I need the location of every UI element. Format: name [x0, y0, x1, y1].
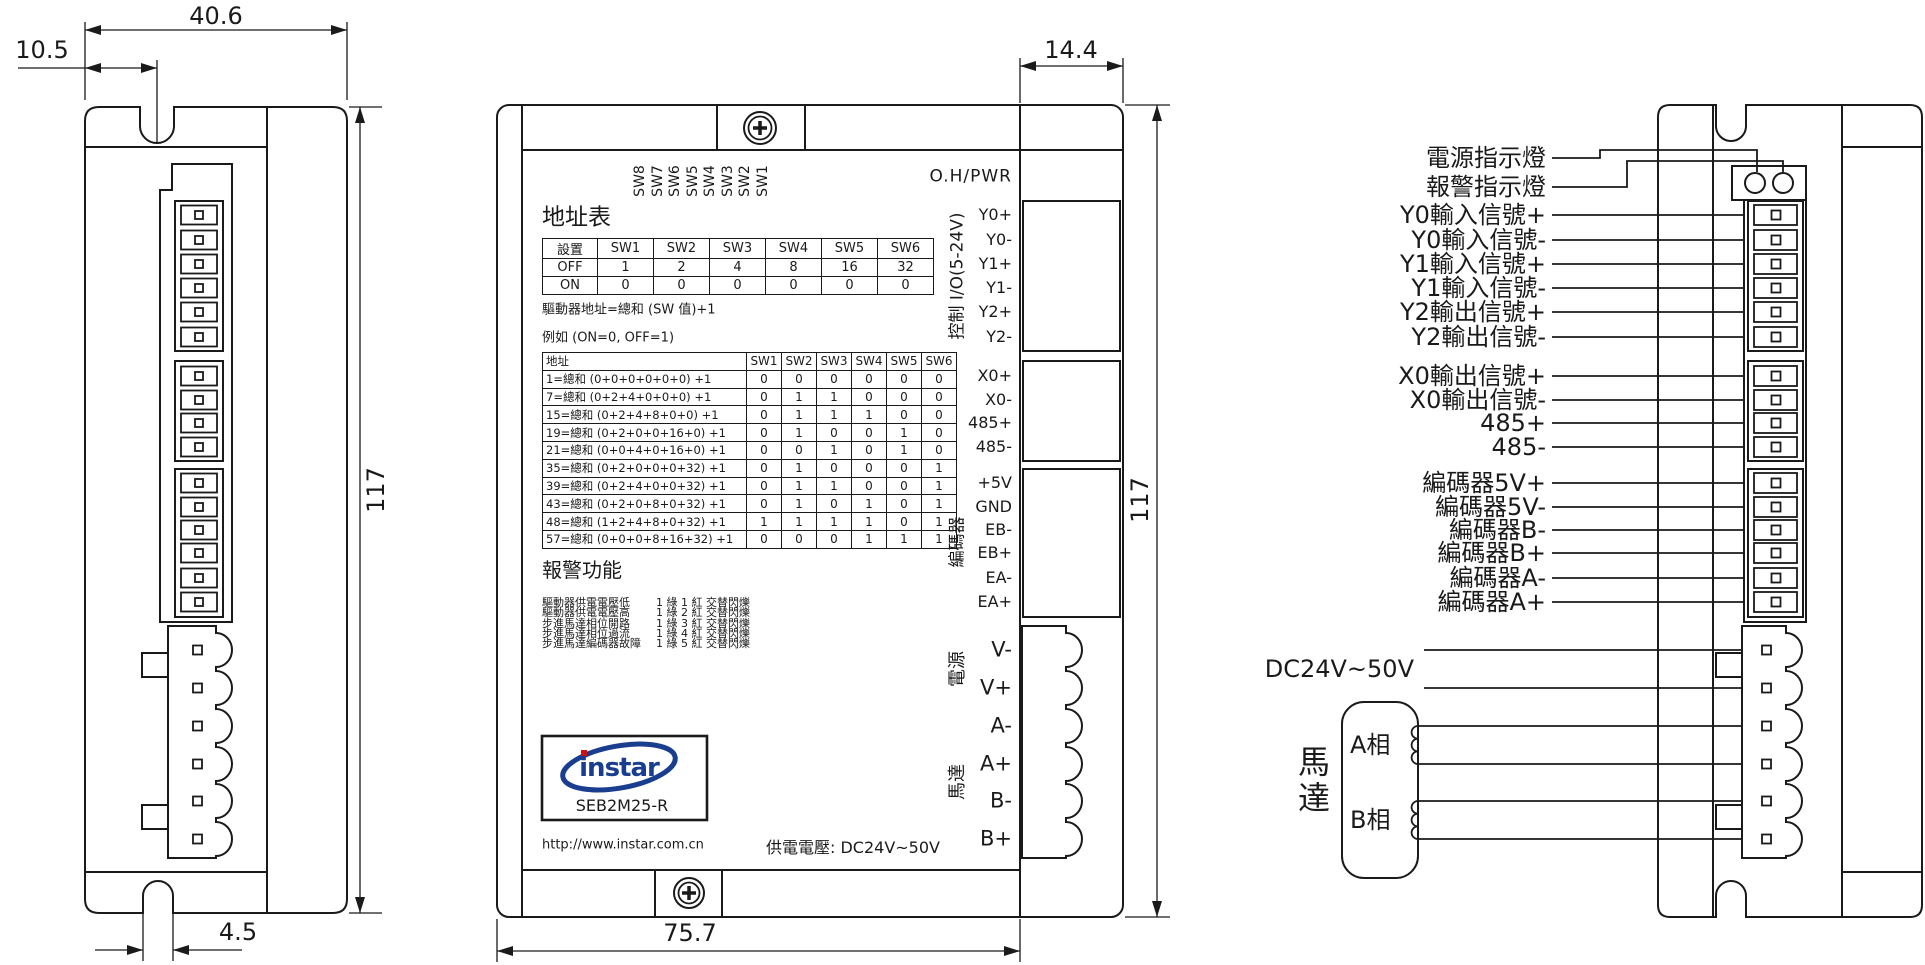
right-view-outline [1658, 105, 1922, 917]
pin-label-+5V: +5V [977, 475, 1012, 491]
front-power-plug [1022, 626, 1082, 858]
alarm-signal: 1 綠 5 紅 交替閃爍 [656, 639, 750, 649]
front-block-io [1023, 201, 1120, 351]
dip-switch-label-sw3: SW3 [721, 165, 735, 197]
pin-label-V+: V+ [980, 678, 1012, 699]
front-block-encoder [1023, 469, 1120, 617]
plug-tab [1716, 653, 1742, 677]
front-block-comm [1023, 361, 1120, 461]
alarm-item: 步進馬達編碼器故障1 綠 5 紅 交替閃爍 [542, 639, 750, 649]
led-panel [1732, 166, 1806, 200]
table-row: ON000000 [543, 276, 934, 294]
pin-label-B-: B- [990, 791, 1012, 812]
dim-arrow [355, 897, 365, 913]
dim-arrow [331, 25, 347, 35]
alarm-title: 報警功能 [542, 560, 622, 580]
left-view-outline [85, 107, 347, 913]
phase-b-label: B相 [1350, 808, 1390, 832]
pin-label-A+: A+ [980, 754, 1012, 775]
table-row: 1=總和 (0+0+0+0+0+0) +1000000 [543, 370, 957, 388]
table-row: 48=總和 (1+2+4+8+0+32) +1111101 [543, 513, 957, 531]
plug-tab [1716, 805, 1742, 829]
address-formula: 驅動器地址=總和 (SW 值)+1 [542, 304, 716, 317]
dim-arrow [1152, 901, 1162, 917]
pin-label-V-: V- [991, 640, 1012, 661]
screw-bottom-icon [674, 878, 704, 908]
right-terminal-block-io [1748, 201, 1803, 351]
dip-switch-label-sw5: SW5 [686, 165, 700, 197]
wire-label-15: 編碼器B+ [1437, 541, 1546, 565]
dim-arrow [1107, 61, 1123, 71]
wire-label-16: 編碼器A- [1449, 566, 1546, 590]
dip-switch-label-sw6: SW6 [668, 165, 682, 197]
table-row: 21=總和 (0+0+4+0+16+0) +1001010 [543, 441, 957, 459]
wire-label-5: Y1輸入信號- [1411, 276, 1546, 300]
phase-a-label: A相 [1350, 733, 1390, 757]
pin-label-GND: GND [975, 499, 1012, 515]
dip-switch-label-sw8: SW8 [633, 165, 647, 197]
table-row: 39=總和 (0+2+4+0+0+32) +1011001 [543, 477, 957, 495]
dim-arrow [127, 945, 143, 955]
dim-arrow [85, 63, 101, 73]
screw-top-icon [744, 112, 776, 144]
pin-label-Y0-: Y0- [986, 232, 1012, 248]
address-table-title: 地址表 [542, 207, 611, 230]
wire-label-11: 485- [1492, 435, 1546, 459]
dim-left-slot: 4.5 [219, 920, 257, 944]
pin-label-Y2+: Y2+ [979, 304, 1012, 320]
wire-label-7: Y2輸出信號- [1411, 325, 1546, 349]
dim-arrow [173, 945, 189, 955]
dim-arrow [355, 107, 365, 123]
table-row: 地址SW1SW2SW3SW4SW5SW6 [543, 353, 957, 371]
pin-label-EA+: EA+ [978, 594, 1012, 610]
motor-label-vertical: 馬達 [1296, 745, 1328, 817]
group-label-control-io: 控制 I/O(5-24V) [950, 212, 967, 339]
dim-arrow [1020, 61, 1036, 71]
logo-dot [581, 750, 587, 756]
pin-label-EB+: EB+ [978, 545, 1013, 561]
dim-arrow [1152, 105, 1162, 121]
stepper-driver-technical-drawing: 40.6 10.5 117 4.5 14.4 117 75.7 O.H/PWR … [0, 0, 1925, 965]
pin-label-485+: 485+ [968, 415, 1012, 431]
dim-arrow [1004, 946, 1020, 956]
pin-label-X0+: X0+ [977, 368, 1012, 384]
wire-label-6: Y2輸出信號+ [1400, 300, 1546, 324]
table-row: 57=總和 (0+0+0+8+16+32) +1000111 [543, 530, 957, 548]
motor-symbol-box [1342, 702, 1418, 878]
dim-front-depth: 14.4 [1044, 38, 1097, 62]
generated-line-art [142, 150, 1803, 858]
pin-label-B+: B+ [980, 829, 1012, 850]
dim-left-height: 117 [364, 467, 388, 513]
table-row: 43=總和 (0+2+0+8+0+32) +1010101 [543, 495, 957, 513]
group-label-motor: 馬達 [949, 764, 967, 800]
pin-label-EB-: EB- [985, 522, 1012, 538]
pin-label-Y1+: Y1+ [979, 256, 1012, 272]
dip-switch-label-sw7: SW7 [651, 165, 665, 197]
pin-label-485-: 485- [976, 439, 1012, 455]
table-row: OFF12481632 [543, 259, 934, 277]
dip-switch-label-sw1: SW1 [756, 165, 770, 197]
right-terminal-block-comm [1748, 361, 1803, 461]
group-label-power: 電源 [949, 651, 967, 687]
dim-arrow [497, 946, 513, 956]
pin-label-A-: A- [991, 716, 1012, 737]
wire-label-8: X0輸出信號+ [1398, 364, 1546, 388]
alarm-led-icon [1773, 173, 1793, 193]
power-led-icon [1745, 173, 1765, 193]
oh-pwr-label: O.H/PWR [930, 169, 1012, 186]
dim-left-width: 40.6 [189, 4, 242, 28]
wire-label-0: 電源指示燈 [1426, 146, 1546, 170]
pin-label-Y1-: Y1- [986, 280, 1012, 296]
table-row: 35=總和 (0+2+0+0+0+32) +1010001 [543, 459, 957, 477]
wire-label-17: 編碼器A+ [1437, 590, 1546, 614]
left-connector-housing [160, 164, 232, 622]
wire-label-10: 485+ [1480, 411, 1546, 435]
table-row: 設置SW1SW2SW3SW4SW5SW6 [543, 239, 934, 259]
left-power-plug [168, 626, 232, 858]
table-row: 19=總和 (0+2+0+0+16+0) +1010010 [543, 424, 957, 442]
dim-arrow [85, 25, 101, 35]
wire-label-2: Y0輸入信號+ [1400, 203, 1546, 227]
address-example: 例如 (ON=0, OFF=1) [542, 332, 674, 345]
pin-label-Y2-: Y2- [986, 329, 1012, 345]
pin-label-X0-: X0- [985, 392, 1012, 408]
left-terminal-block-io [175, 201, 223, 351]
logo-model: SEB2M25-R [576, 798, 668, 814]
switch-value-table: 設置SW1SW2SW3SW4SW5SW6OFF12481632ON000000 [542, 238, 934, 295]
pin-label-EA-: EA- [986, 570, 1012, 586]
logo-url: http://www.instar.com.cn [542, 839, 704, 852]
plug-tab [142, 805, 168, 829]
address-example-table: 地址SW1SW2SW3SW4SW5SW61=總和 (0+0+0+0+0+0) +… [542, 352, 957, 549]
dip-switch-label-sw2: SW2 [738, 165, 752, 197]
wire-label-4: Y1輸入信號+ [1400, 252, 1546, 276]
right-power-plug [1742, 626, 1802, 858]
line-art [0, 0, 1925, 965]
left-terminal-block-comm [175, 361, 223, 461]
pin-label-Y0+: Y0+ [979, 207, 1012, 223]
dc-supply-wires [1424, 650, 1742, 688]
dim-arrow [141, 63, 157, 73]
alarm-condition: 步進馬達編碼器故障 [542, 639, 656, 649]
dim-front-width: 75.7 [663, 921, 716, 945]
wire-label-3: Y0輸入信號- [1411, 228, 1546, 252]
wire-label-12: 編碼器5V+ [1422, 471, 1546, 495]
supply-voltage-label: 供電電壓: DC24V~50V [766, 840, 940, 856]
wire-label-1: 報警指示燈 [1426, 175, 1546, 199]
dim-left-notch-offset: 10.5 [15, 38, 68, 62]
logo-brand: instar [579, 755, 659, 781]
dc-supply-label: DC24V~50V [1265, 657, 1414, 681]
table-row: 7=總和 (0+2+4+0+0+0) +1011000 [543, 388, 957, 406]
alarm-list: 驅動器供電電壓低1 綠 1 紅 交替閃爍驅動器供電電壓高1 綠 2 紅 交替閃爍… [542, 598, 750, 649]
plug-tab [142, 653, 168, 677]
alarm-led-wire [1552, 161, 1783, 187]
dip-switch-label-sw4: SW4 [703, 165, 717, 197]
table-row: 15=總和 (0+2+4+8+0+0) +1011100 [543, 406, 957, 424]
dim-front-height: 117 [1128, 477, 1152, 523]
